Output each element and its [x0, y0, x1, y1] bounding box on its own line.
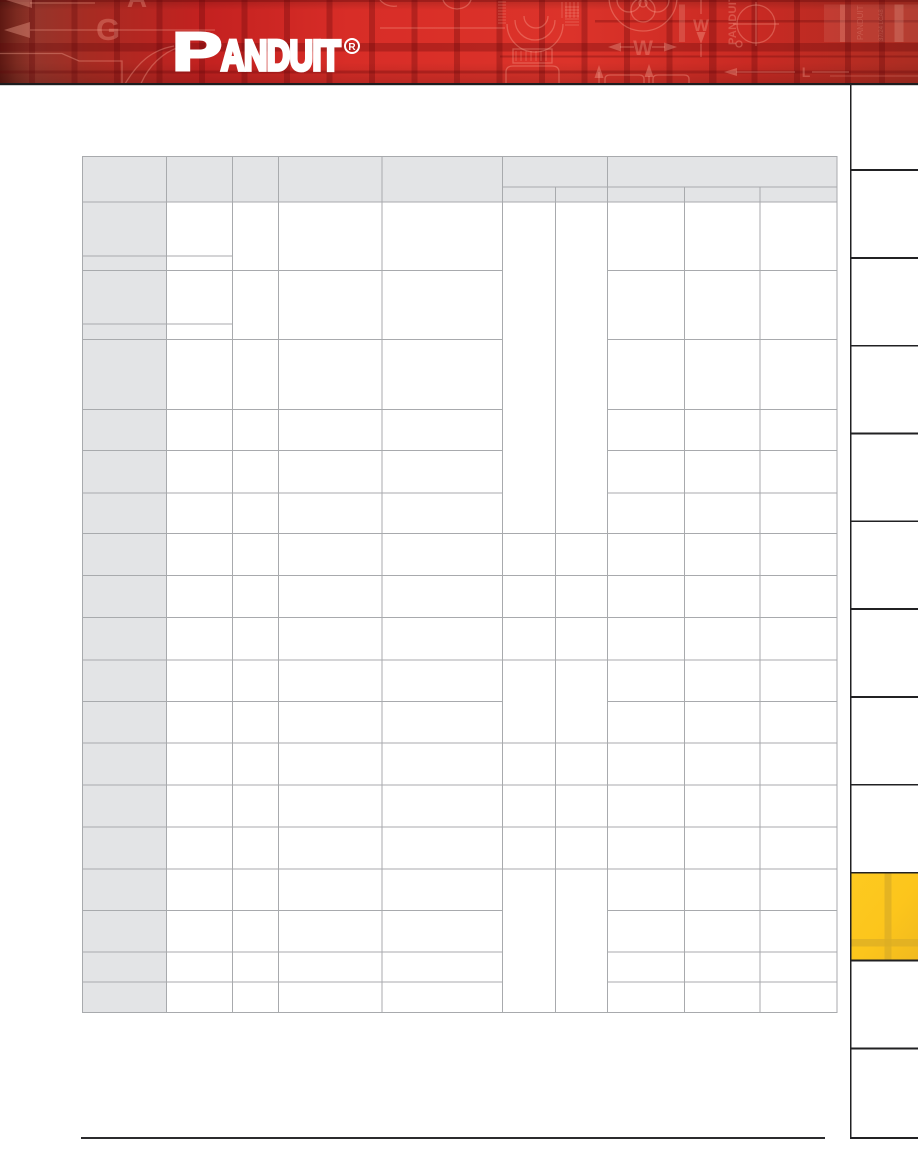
svg-text:37/24 LCA8: 37/24 LCA8: [879, 9, 885, 41]
svg-text:A: A: [127, 0, 147, 13]
svg-text:ANDUIT: ANDUIT: [221, 32, 340, 80]
svg-text:PANDUIT: PANDUIT: [727, 0, 739, 45]
svg-text:W: W: [693, 16, 710, 35]
svg-text:L: L: [802, 64, 811, 80]
svg-text:W: W: [633, 37, 653, 60]
svg-text:P: P: [173, 21, 222, 82]
svg-text:PANDUIT: PANDUIT: [856, 5, 865, 40]
svg-text:R: R: [348, 42, 356, 53]
svg-text:G: G: [96, 12, 120, 47]
